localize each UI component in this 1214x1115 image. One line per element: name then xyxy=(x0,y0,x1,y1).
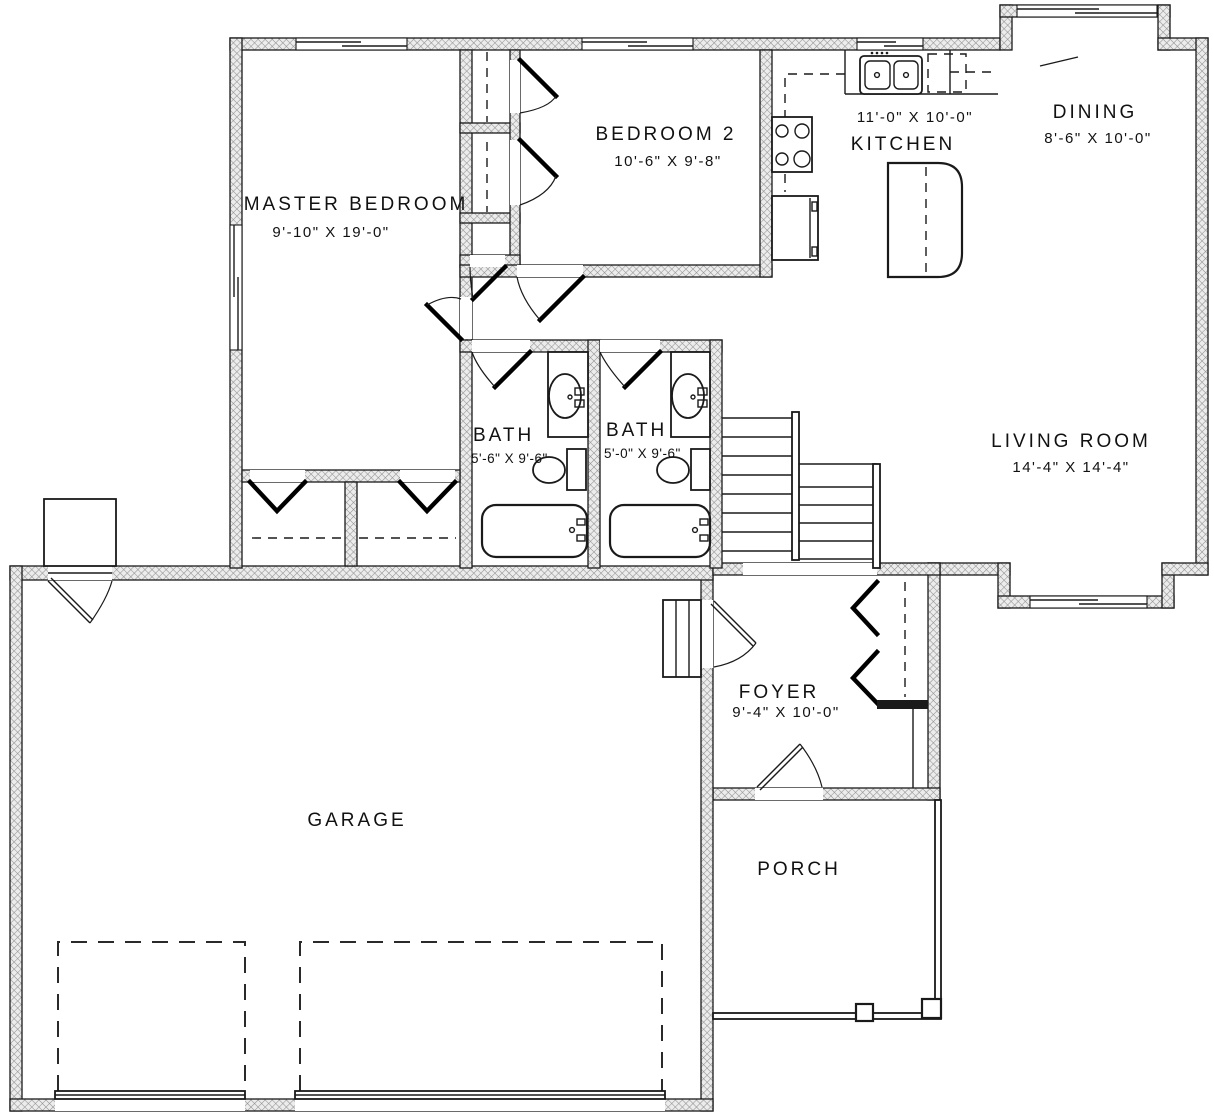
bath-2-door xyxy=(600,352,660,387)
garage-service-door xyxy=(48,578,112,623)
dims-foyer: 9'-4" X 10'-0" xyxy=(732,704,839,721)
label-foyer: FOYER xyxy=(739,682,819,703)
master-bedroom-window-top xyxy=(296,38,407,50)
closet-door-top xyxy=(520,60,556,113)
vanity-sink-2 xyxy=(671,352,710,437)
porch-post xyxy=(856,1004,873,1021)
porch-post xyxy=(922,999,941,1018)
bathtub-2 xyxy=(610,505,710,557)
garage-door-panel-2 xyxy=(295,1091,665,1099)
label-kitchen: KITCHEN xyxy=(851,134,955,155)
dims-bath-2: 5'-0" X 9'-6" xyxy=(604,446,681,461)
dining-slider-door xyxy=(1017,5,1157,66)
foyer-closet-bifold xyxy=(853,582,877,703)
dims-dining: 8'-6" X 10'-0" xyxy=(1044,130,1151,147)
refrigerator xyxy=(772,196,818,260)
label-master-bedroom: MASTER BEDROOM xyxy=(244,194,469,215)
dims-master-bedroom: 9'-10" X 19'-0" xyxy=(272,224,389,241)
porch-edge-bottom xyxy=(713,1013,941,1019)
vanity-sink-1 xyxy=(548,352,588,437)
kitchen-fixtures xyxy=(772,50,998,277)
closet-door-middle xyxy=(520,140,556,205)
kitchen-sink xyxy=(860,52,922,94)
master-closet-bifold-left xyxy=(250,482,305,511)
dishwasher xyxy=(928,54,966,92)
service-door-stoop xyxy=(44,499,116,566)
bath-1-door xyxy=(472,352,530,387)
master-bedroom-door xyxy=(427,297,461,339)
garage-door-track-1 xyxy=(58,942,245,1091)
label-bedroom-2: BEDROOM 2 xyxy=(595,124,736,145)
living-room-bay-window xyxy=(1030,596,1147,608)
dims-bedroom-2: 10'-6" X 9'-8" xyxy=(614,153,721,170)
master-closet-bifold-right xyxy=(400,482,455,511)
kitchen-island xyxy=(888,163,962,277)
bathtub-1 xyxy=(482,505,587,557)
label-dining: DINING xyxy=(1053,102,1138,123)
master-bedroom-window-side xyxy=(230,225,242,350)
garage-details xyxy=(44,499,701,1099)
bedroom-2-window xyxy=(582,38,693,50)
foyer-closet-wall xyxy=(877,700,928,709)
dims-bath-1: 5'-6" X 9'-6" xyxy=(471,451,548,466)
dims-living-room: 14'-4" X 14'-4" xyxy=(1012,459,1129,476)
garage-door-panel-1 xyxy=(55,1091,245,1099)
label-living-room: LIVING ROOM xyxy=(991,431,1151,452)
front-door xyxy=(757,744,822,790)
porch-edge-right xyxy=(935,800,941,1014)
stair-railing xyxy=(792,412,799,560)
kitchen-window xyxy=(857,38,923,50)
exterior-walls xyxy=(10,5,1208,1111)
floor-plan-canvas: MASTER BEDROOM 9'-10" X 19'-0" BEDROOM 2… xyxy=(0,0,1214,1115)
label-bath-2: BATH xyxy=(606,420,667,441)
stairs xyxy=(722,412,880,568)
garage-to-foyer-door xyxy=(711,601,756,667)
range xyxy=(772,117,812,172)
bedroom-2-door xyxy=(517,277,583,320)
dims-kitchen: 11'-0" X 10'-0" xyxy=(857,109,973,126)
label-bath-1: BATH xyxy=(473,425,534,446)
floor-plan-drawing: MASTER BEDROOM 9'-10" X 19'-0" BEDROOM 2… xyxy=(0,0,1214,1115)
porch-structure xyxy=(713,800,941,1021)
label-garage: GARAGE xyxy=(307,810,406,831)
label-porch: PORCH xyxy=(757,859,841,880)
room-labels: MASTER BEDROOM 9'-10" X 19'-0" BEDROOM 2… xyxy=(244,102,1152,880)
garage-entry-steps xyxy=(663,600,701,677)
stair-half-wall xyxy=(873,464,880,568)
garage-door-track-2 xyxy=(300,942,662,1091)
